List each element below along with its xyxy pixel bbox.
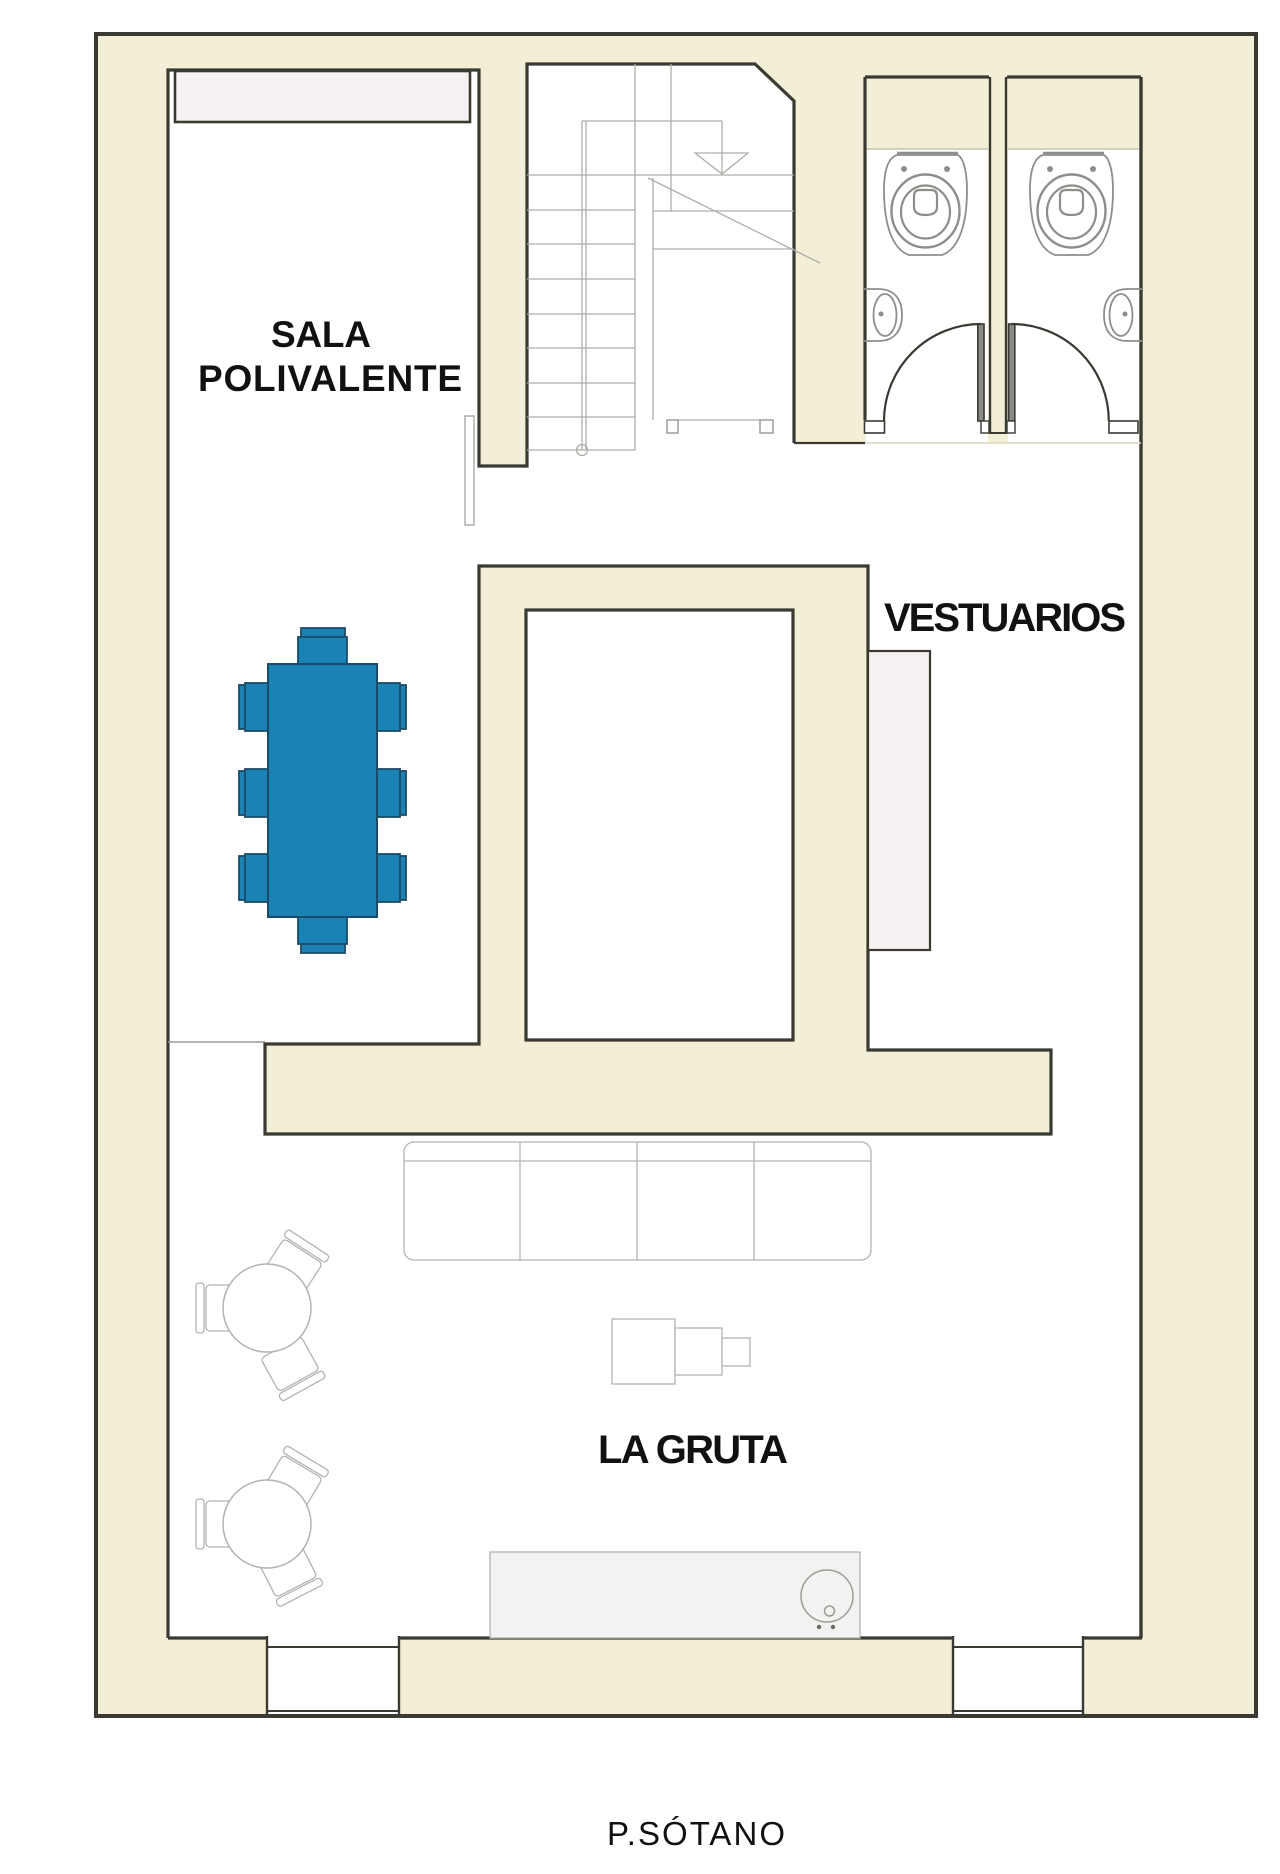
svg-text:SALA: SALA	[271, 314, 371, 355]
svg-text:POLIVALENTE: POLIVALENTE	[198, 358, 462, 399]
svg-text:VESTUARIOS: VESTUARIOS	[884, 596, 1126, 640]
svg-text:LA GRUTA: LA GRUTA	[598, 1428, 788, 1472]
